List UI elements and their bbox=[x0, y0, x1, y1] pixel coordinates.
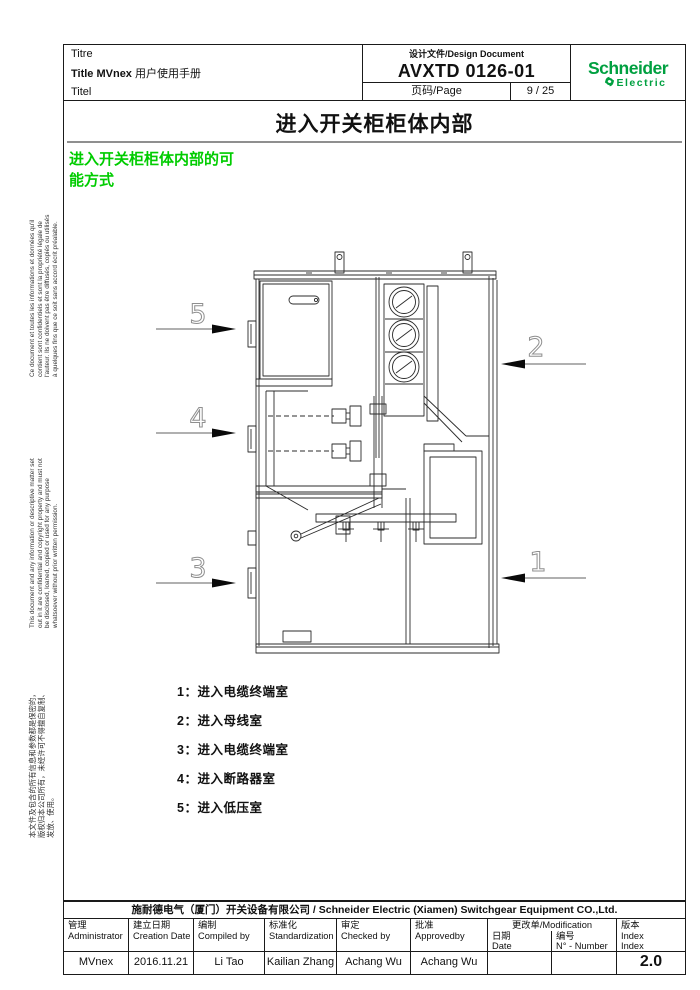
page-title: 进入开关柜柜体内部 bbox=[64, 101, 685, 141]
callout-2: 2 bbox=[527, 332, 544, 363]
company-name: 施耐德电气（厦门）开关设备有限公司 / Schneider Electric (… bbox=[64, 902, 685, 919]
modification-date-label: 日期Date bbox=[488, 931, 551, 952]
schneider-loop-icon bbox=[604, 76, 615, 90]
legend-item-5: 5：进入低压室 bbox=[177, 802, 288, 815]
logo-wordmark: Schneider bbox=[588, 60, 668, 76]
compartment-legend: 1：进入电缆终端室 2：进入母线室 3：进入电缆终端室 4：进入断路器室 5：进… bbox=[177, 686, 288, 831]
callout-1: 1 bbox=[529, 547, 546, 578]
modification-number-value bbox=[551, 952, 616, 974]
title-divider bbox=[67, 141, 682, 143]
col-modification: 更改单/Modification 日期Date 编号N° - Number bbox=[488, 919, 617, 974]
logo-electric-label: Electric bbox=[617, 77, 667, 89]
title-block-header: Titre Title MVnex 用户使用手册 Titel 设计文件/Desi… bbox=[64, 45, 685, 101]
modification-number-label: 编号N° - Number bbox=[551, 931, 616, 952]
label-titre: Titre bbox=[71, 48, 362, 60]
confidentiality-note-chinese: 本文件及包含的所有信息和参数都是保密的， 版权归本公司所有，未经许可不得擅自复制… bbox=[28, 658, 55, 838]
label-titel: Titel bbox=[71, 86, 362, 98]
switchgear-drawing: 5 4 3 2 1 bbox=[156, 246, 591, 666]
confidentiality-note-english: This document and any information or des… bbox=[29, 386, 59, 628]
compiled-by-value: Li Tao bbox=[194, 952, 264, 974]
document-number: AVXTD 0126-01 bbox=[363, 61, 570, 82]
col-checked-by: 审定Checked by Achang Wu bbox=[337, 919, 411, 974]
title-cell: Titre Title MVnex 用户使用手册 Titel bbox=[64, 45, 363, 100]
callout-3: 3 bbox=[189, 553, 206, 584]
col-approved-by: 批准Approvedby Achang Wu bbox=[411, 919, 488, 974]
approval-block: 施耐德电气（厦门）开关设备有限公司 / Schneider Electric (… bbox=[64, 900, 685, 974]
page-label: 页码/Page bbox=[363, 83, 511, 100]
schneider-electric-logo: Schneider Electric bbox=[571, 45, 685, 100]
version-index-value: 2.0 bbox=[617, 952, 685, 974]
legend-item-2: 2：进入母线室 bbox=[177, 715, 288, 728]
document-frame: Titre Title MVnex 用户使用手册 Titel 设计文件/Desi… bbox=[63, 44, 686, 975]
col-creation-date: 建立日期Creation Date 2016.11.21 bbox=[129, 919, 194, 974]
legend-item-4: 4：进入断路器室 bbox=[177, 773, 288, 786]
col-compiled-by: 编制Compiled by Li Tao bbox=[194, 919, 265, 974]
callout-4: 4 bbox=[189, 403, 206, 434]
callout-arrows bbox=[156, 325, 586, 588]
switchgear-cutaway-figure: 5 4 3 2 1 bbox=[156, 246, 591, 666]
design-document-label: 设计文件/Design Document bbox=[363, 47, 570, 60]
modification-title: 更改单/Modification bbox=[488, 920, 616, 931]
col-administrator: 管理Administrator MVnex bbox=[64, 919, 129, 974]
callout-5: 5 bbox=[189, 299, 206, 330]
section-heading: 进入开关柜柜体内部的可 能方式 bbox=[69, 149, 319, 191]
document-number-cell: 设计文件/Design Document AVXTD 0126-01 页码/Pa… bbox=[363, 45, 571, 100]
legend-item-1: 1：进入电缆终端室 bbox=[177, 686, 288, 699]
standardization-value: Kailian Zhang bbox=[265, 952, 336, 974]
modification-date-value bbox=[488, 952, 551, 974]
page-number: 9 / 25 bbox=[511, 83, 570, 100]
creation-date-value: 2016.11.21 bbox=[129, 952, 193, 974]
confidentiality-note-french: Ce document et toutes les informations e… bbox=[29, 130, 59, 377]
legend-item-3: 3：进入电缆终端室 bbox=[177, 744, 288, 757]
col-version-index: 版本IndexIndex 2.0 bbox=[617, 919, 685, 974]
col-standardization: 标准化Standardization Kailian Zhang bbox=[265, 919, 337, 974]
approved-by-value: Achang Wu bbox=[411, 952, 487, 974]
document-title-line: Title MVnex 用户使用手册 bbox=[71, 65, 362, 81]
checked-by-value: Achang Wu bbox=[337, 952, 410, 974]
administrator-value: MVnex bbox=[64, 952, 128, 974]
